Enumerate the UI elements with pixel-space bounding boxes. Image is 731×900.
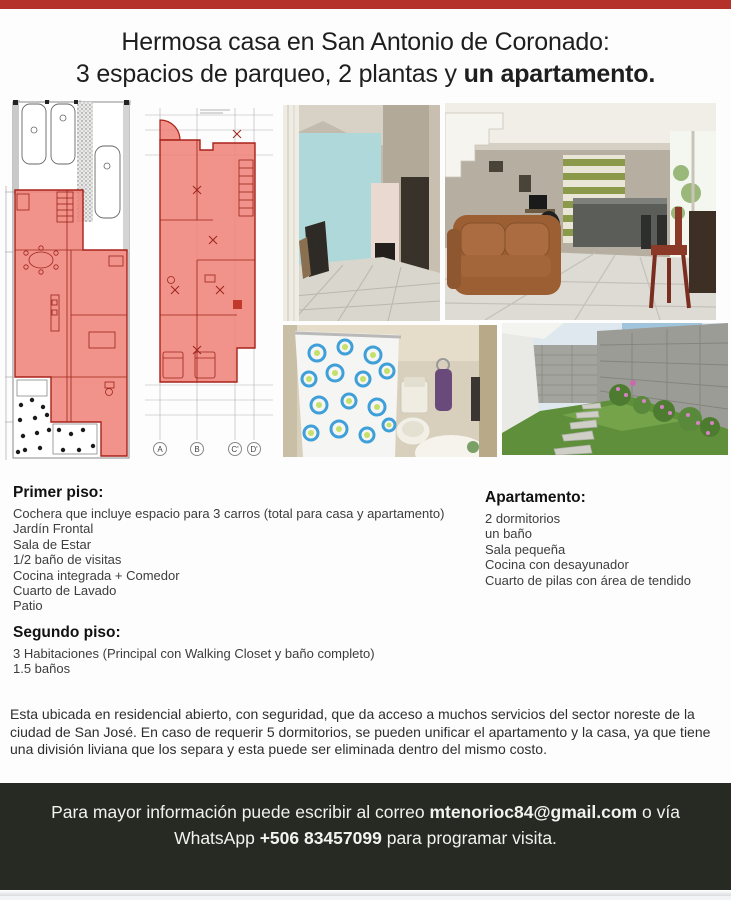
list-item: un baño xyxy=(485,526,725,541)
top-red-bar xyxy=(0,0,731,9)
floor-plan-first-floor xyxy=(5,100,137,465)
contact-footer: Para mayor información puede escribir al… xyxy=(0,783,731,890)
footer-line-1: Para mayor información puede escribir al… xyxy=(0,799,731,825)
photo-living-room xyxy=(445,103,716,320)
list-item: Cocina con desayunador xyxy=(485,557,725,572)
segundo-piso-list: 3 Habitaciones (Principal con Walking Cl… xyxy=(13,646,473,677)
shower-curtain xyxy=(295,331,401,457)
grid-label-c: C' xyxy=(228,442,242,456)
photo-bathroom xyxy=(283,325,497,457)
footer-line-2: WhatsApp +506 83457099 para programar vi… xyxy=(0,825,731,851)
sofa xyxy=(447,215,561,295)
list-item: Sala pequeña xyxy=(485,542,725,557)
apartamento-list: 2 dormitorios un baño Sala pequeña Cocin… xyxy=(485,511,725,588)
car-shape xyxy=(51,104,75,164)
segundo-piso-heading: Segundo piso: xyxy=(13,624,473,642)
list-item: 1/2 baño de visitas xyxy=(13,552,473,567)
location-description: Esta ubicada en residencial abierto, con… xyxy=(10,706,726,759)
list-item: 2 dormitorios xyxy=(485,511,725,526)
list-item: Cocina integrada + Comedor xyxy=(13,568,473,583)
list-item: Jardín Frontal xyxy=(13,521,473,536)
list-item: 1.5 baños xyxy=(13,661,473,676)
dark-furniture xyxy=(689,211,716,293)
apartamento-heading: Apartamento: xyxy=(485,489,725,507)
car-shape xyxy=(95,146,120,218)
grid-label-a: A xyxy=(153,442,167,456)
solid-marker xyxy=(233,300,242,309)
section-apartamento: Apartamento: 2 dormitorios un baño Sala … xyxy=(485,489,725,588)
title-line-2: 3 espacios de parqueo, 2 plantas y un ap… xyxy=(0,58,731,90)
contact-email: mtenorioc84@gmail.com xyxy=(429,802,637,822)
curtain xyxy=(283,105,299,321)
grid-label-b: B xyxy=(190,442,204,456)
list-item: Cochera que incluye espacio para 3 carro… xyxy=(13,506,473,521)
toilet xyxy=(396,377,430,445)
kitchen-island xyxy=(573,198,667,249)
floor-plan-second-floor: A B C' D' xyxy=(145,100,275,460)
photo-garden xyxy=(502,323,728,455)
primer-piso-heading: Primer piso: xyxy=(13,484,473,502)
section-primer-piso: Primer piso: Cochera que incluye espacio… xyxy=(13,484,473,614)
real-estate-flyer: Hermosa casa en San Antonio de Coronado:… xyxy=(0,0,731,900)
grid-label-d: D' xyxy=(247,442,261,456)
contact-phone: +506 83457099 xyxy=(260,828,382,848)
photo-hallway xyxy=(283,105,440,321)
floor-plan-first-floor-drawing xyxy=(5,100,137,460)
car-shape xyxy=(22,104,46,164)
bottom-gray-strip xyxy=(0,896,731,900)
list-item: Sala de Estar xyxy=(13,537,473,552)
flyer-title: Hermosa casa en San Antonio de Coronado:… xyxy=(0,26,731,90)
list-item: Cuarto de pilas con área de tendido xyxy=(485,573,725,588)
floor-plan-second-floor-drawing xyxy=(145,100,275,460)
door-arc xyxy=(160,120,180,140)
list-item: Cuarto de Lavado xyxy=(13,583,473,598)
list-item: Patio xyxy=(13,598,473,613)
list-item: 3 Habitaciones (Principal con Walking Cl… xyxy=(13,646,473,661)
title-line-1: Hermosa casa en San Antonio de Coronado: xyxy=(0,26,731,58)
section-segundo-piso: Segundo piso: 3 Habitaciones (Principal … xyxy=(13,624,473,677)
primer-piso-list: Cochera que incluye espacio para 3 carro… xyxy=(13,506,473,614)
